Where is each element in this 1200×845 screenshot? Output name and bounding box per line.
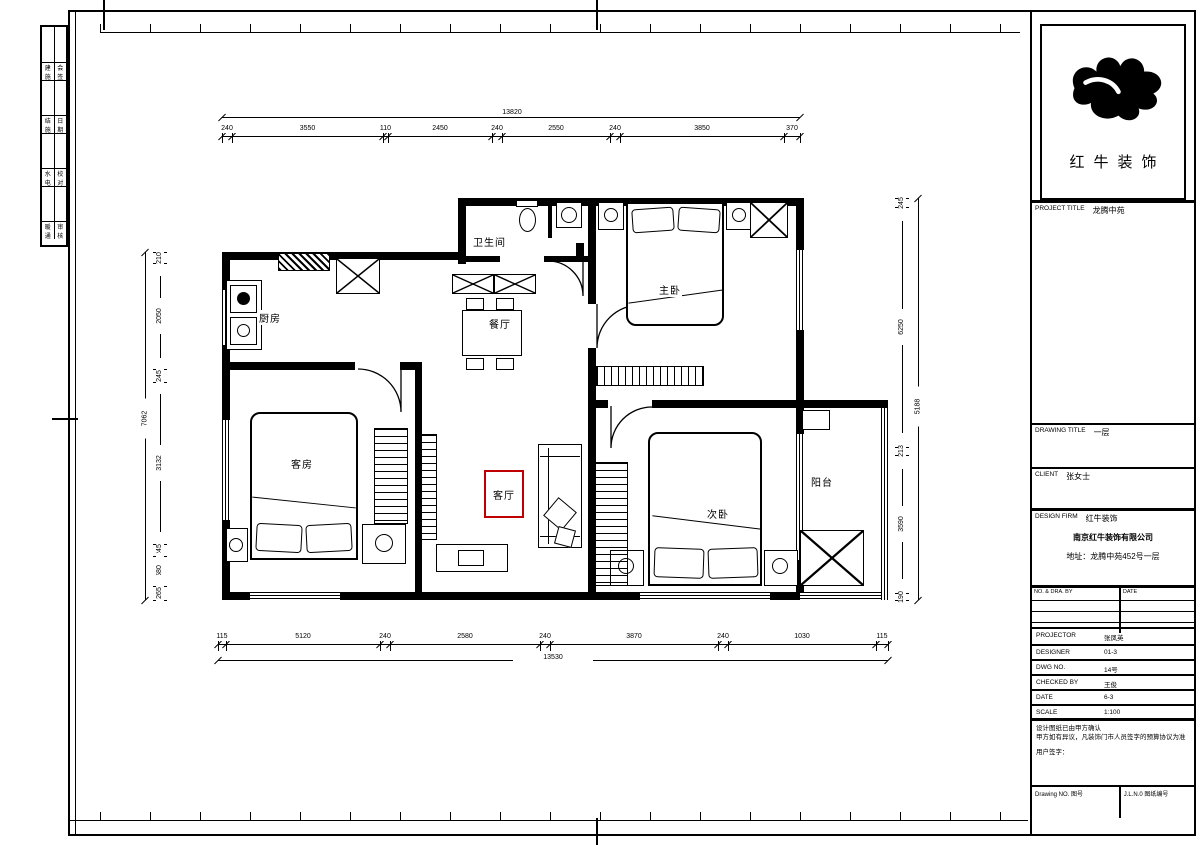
dining-chair bbox=[466, 358, 484, 370]
stove-icon bbox=[278, 253, 330, 271]
note-line: 设计图纸已由甲方确认 bbox=[1036, 724, 1190, 733]
field-checked-by: CHECKED BY王俊 bbox=[1032, 674, 1194, 689]
second-bedroom-window bbox=[640, 592, 770, 599]
client-value: 张女士 bbox=[1066, 471, 1090, 482]
footer-drawing-no: Drawing NO. 图号 bbox=[1032, 787, 1121, 818]
dim-overall-left: 7062 bbox=[141, 399, 150, 439]
room-label-master: 主卧 bbox=[658, 282, 682, 297]
log-header-right: DATE bbox=[1121, 588, 1194, 600]
room-label-second: 次卧 bbox=[706, 506, 730, 521]
fields-section: PROJECTOR张凤英 DESIGNER01-3 DWG NO.14号 CHE… bbox=[1032, 627, 1194, 718]
company-name: 南京红牛装饰有限公司 bbox=[1032, 532, 1194, 543]
sign-cell: 水电 bbox=[42, 169, 54, 186]
room-label-living: 客厅 bbox=[492, 487, 516, 502]
room-label-living-highlight[interactable]: 客厅 bbox=[484, 470, 524, 518]
dim-chain-left: 21020502453132245580265 bbox=[160, 252, 161, 600]
hall-cabinet bbox=[417, 434, 437, 540]
project-title-label: PROJECT TITLE bbox=[1035, 205, 1085, 216]
logo-text: 红牛装饰 bbox=[1042, 151, 1184, 172]
entry-closet bbox=[336, 258, 380, 294]
pillow bbox=[677, 207, 721, 234]
top-center-mark bbox=[596, 0, 598, 30]
sign-cell: 会签 bbox=[54, 63, 67, 80]
design-firm-section: DESIGN FIRM 红牛装饰 南京红牛装饰有限公司 地址：龙腾中苑452号一… bbox=[1032, 508, 1194, 585]
room-label-kitchen: 厨房 bbox=[258, 310, 282, 325]
room-label-bathroom: 卫生间 bbox=[472, 234, 507, 249]
guest-south-window bbox=[250, 592, 340, 599]
top-left-mark bbox=[103, 0, 105, 30]
field-designer: DESIGNER01-3 bbox=[1032, 644, 1194, 659]
log-header-left: NO. & DRA. BY bbox=[1032, 588, 1121, 600]
dining-chair bbox=[496, 358, 514, 370]
footer-sheet-no: J.L.N.0 图纸编号 bbox=[1121, 787, 1194, 818]
dim-chain-right: 24562502133590190 bbox=[902, 198, 903, 600]
notes-section: 设计图纸已由甲方确认 甲方如有异议，凡装饰门市人员签字的预算协议为准 用户签字： bbox=[1032, 718, 1194, 785]
revision-log-table: NO. & DRA. BY DATE bbox=[1032, 585, 1194, 627]
toilet-bowl-icon bbox=[519, 208, 536, 232]
sign-cell: 审核 bbox=[54, 222, 67, 239]
project-title-value: 龙腾中苑 bbox=[1093, 205, 1125, 216]
dim-overall-right: 5188 bbox=[914, 387, 923, 427]
structural-column bbox=[750, 202, 788, 238]
drawing-sheet: 建施会签 结施日期 水电校对 暖通审核 bbox=[0, 0, 1200, 845]
room-label-dining: 餐厅 bbox=[488, 316, 512, 331]
signature-strip: 建施会签 结施日期 水电校对 暖通审核 bbox=[40, 25, 68, 247]
toilet-icon bbox=[516, 200, 538, 207]
sign-cell: 结施 bbox=[42, 116, 54, 133]
balcony-rail-east bbox=[881, 408, 888, 600]
balcony-rail-south bbox=[800, 592, 888, 599]
design-firm-value: 红牛装饰 bbox=[1086, 513, 1118, 524]
bathroom-door-icon bbox=[546, 260, 584, 298]
dim-chain-bottom: 1155120240258024038702401030115 bbox=[218, 644, 888, 645]
dining-chair bbox=[466, 298, 484, 310]
footer-section: Drawing NO. 图号 J.L.N.0 图纸编号 bbox=[1032, 785, 1194, 818]
balcony-unit bbox=[802, 410, 830, 430]
room-label-guest: 客房 bbox=[290, 456, 314, 471]
top-fold-ticks bbox=[100, 24, 1020, 32]
dining-cabinet bbox=[452, 274, 494, 294]
pillow bbox=[653, 547, 704, 579]
guest-door-icon bbox=[356, 368, 402, 414]
design-firm-label: DESIGN FIRM bbox=[1035, 513, 1078, 524]
guest-window bbox=[222, 420, 229, 520]
client-label: CLIENT bbox=[1035, 471, 1058, 482]
shoe-cabinet bbox=[596, 366, 704, 386]
dim-overall-top-line bbox=[222, 117, 800, 118]
dim-overall-top: 13820 bbox=[472, 108, 552, 117]
master-window bbox=[796, 250, 803, 330]
room-label-balcony: 阳台 bbox=[810, 474, 834, 489]
note-line: 甲方如有异议，凡装饰门市人员签字的预算协议为准 bbox=[1036, 733, 1190, 742]
client-section: CLIENT 张女士 bbox=[1032, 467, 1194, 508]
field-dwg-no: DWG NO.14号 bbox=[1032, 659, 1194, 674]
bottom-inner-line bbox=[70, 820, 1028, 821]
sign-cell: 日期 bbox=[54, 116, 67, 133]
logo-box: 红牛装饰 bbox=[1040, 24, 1186, 200]
dim-chain-top: 2403550110245024025502403850370 bbox=[222, 136, 800, 137]
note-line: 用户签字： bbox=[1036, 748, 1190, 757]
left-center-mark bbox=[52, 418, 78, 420]
pillow bbox=[255, 523, 302, 553]
bottom-center-mark bbox=[596, 818, 598, 845]
redniu-logo-icon bbox=[1058, 44, 1168, 136]
company-address: 地址：龙腾中苑452号一层 bbox=[1032, 551, 1194, 562]
bottom-fold-ticks bbox=[100, 812, 1020, 820]
dim-overall-bottom: 13530 bbox=[513, 653, 593, 662]
sign-cell: 校对 bbox=[54, 169, 67, 186]
sign-cell: 建施 bbox=[42, 63, 54, 80]
project-title-section: PROJECT TITLE 龙腾中苑 bbox=[1032, 200, 1194, 423]
entry-door-leaf bbox=[576, 243, 584, 257]
pillow bbox=[305, 523, 352, 553]
top-inner-line bbox=[100, 32, 1020, 33]
pillow bbox=[707, 547, 758, 579]
pillow bbox=[631, 207, 675, 234]
dining-chair bbox=[496, 298, 514, 310]
balcony-cabinet bbox=[800, 530, 864, 586]
sheet-inner-left-line bbox=[75, 10, 76, 836]
second-wardrobe bbox=[594, 462, 628, 586]
drawing-title-section: DRAWING TITLE 一层 bbox=[1032, 423, 1194, 467]
guest-wardrobe bbox=[374, 428, 408, 524]
field-date: DATE6-3 bbox=[1032, 689, 1194, 704]
field-projector: PROJECTOR张凤英 bbox=[1032, 629, 1194, 644]
drawing-title-label: DRAWING TITLE bbox=[1035, 427, 1086, 438]
sign-cell: 暖通 bbox=[42, 222, 54, 239]
drawing-title-value: 一层 bbox=[1094, 427, 1110, 438]
